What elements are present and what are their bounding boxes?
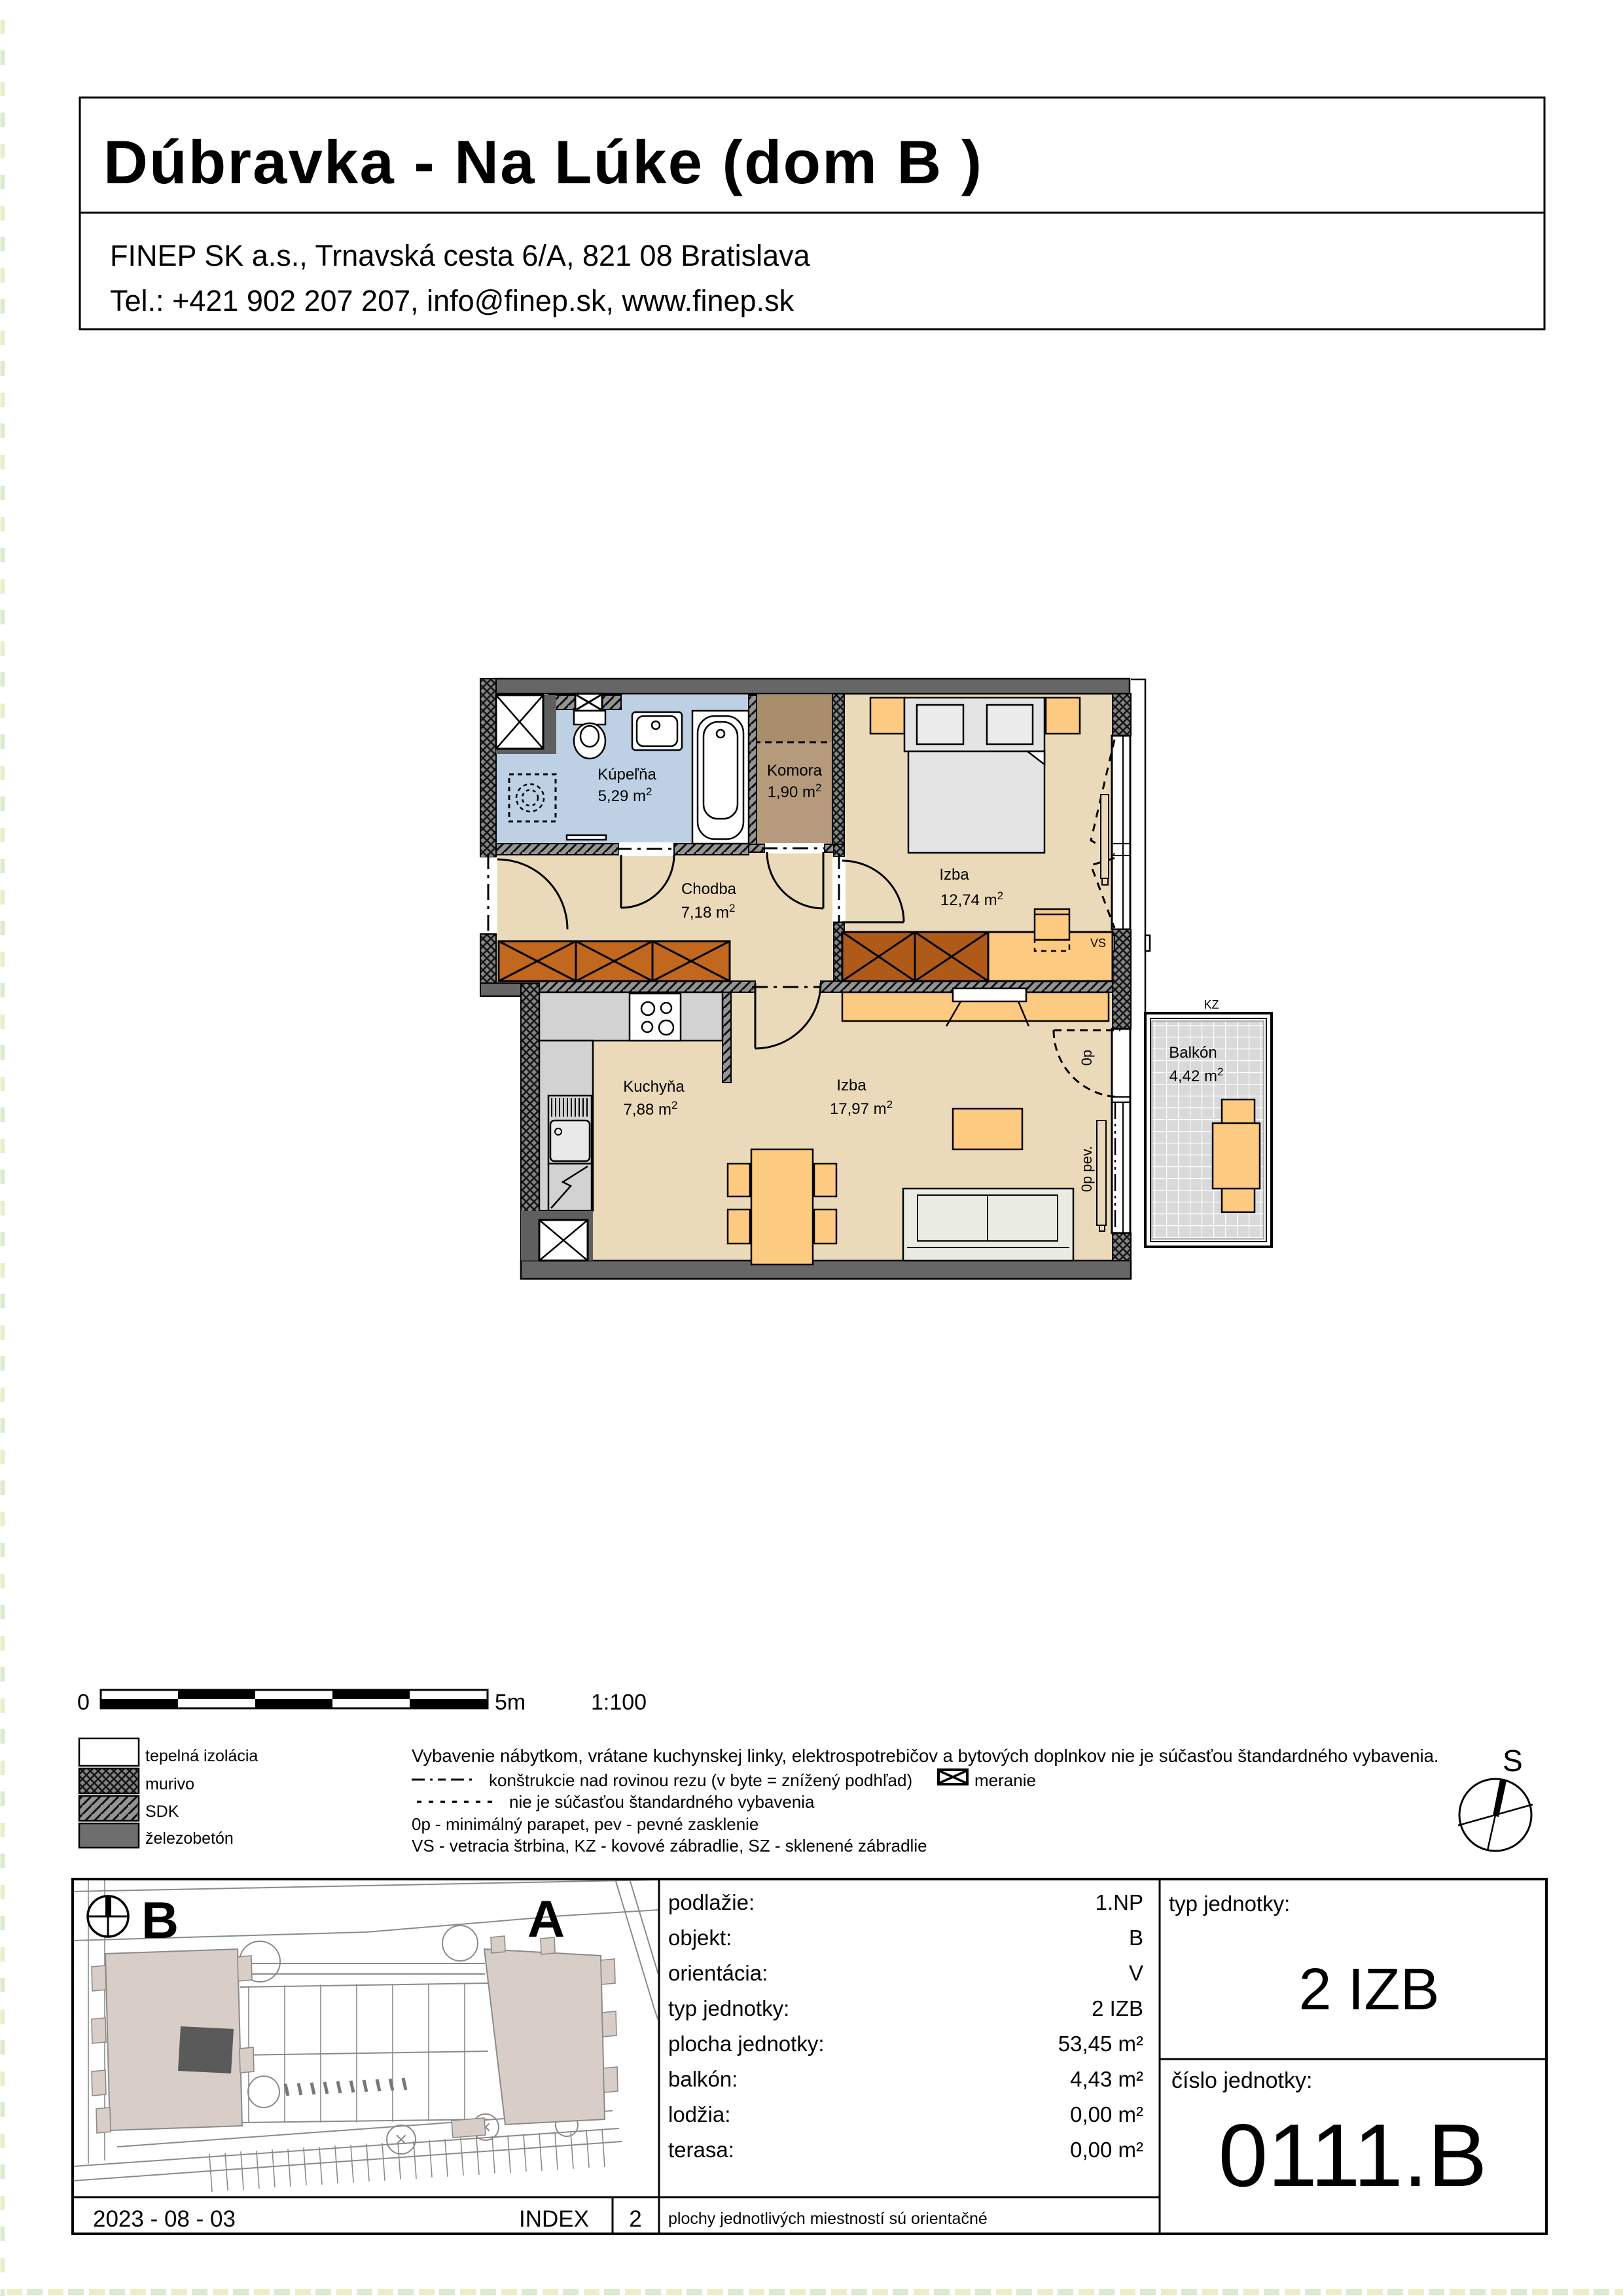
svg-text:lodžia:: lodžia: (668, 2102, 730, 2126)
svg-text:objekt:: objekt: (668, 1926, 732, 1950)
svg-text:železobetón: železobetón (145, 1829, 234, 1848)
svg-text:B: B (1129, 1926, 1143, 1950)
svg-text:typ jednotky:: typ jednotky: (1169, 1892, 1290, 1916)
svg-text:Dúbravka - Na Lúke (dom B ): Dúbravka - Na Lúke (dom B ) (103, 128, 983, 196)
svg-text:0: 0 (77, 1690, 90, 1715)
svg-text:Balkón: Balkón (1169, 1044, 1217, 1062)
svg-text:V: V (1129, 1961, 1143, 1985)
svg-text:Izba: Izba (939, 866, 969, 884)
svg-text:5m: 5m (495, 1690, 526, 1715)
svg-text:B: B (141, 1891, 179, 1949)
svg-text:0p - minimálný parapet, pev -: 0p - minimálný parapet, pev - pevné zask… (412, 1814, 758, 1834)
svg-text:podlažie:: podlažie: (668, 1890, 755, 1914)
svg-text:2023 - 08 - 03: 2023 - 08 - 03 (93, 2206, 236, 2232)
svg-text:0111.B: 0111.B (1219, 2106, 1488, 2205)
svg-text:1,90 m2: 1,90 m2 (768, 781, 822, 801)
svg-text:typ jednotky:: typ jednotky: (668, 1996, 789, 2020)
svg-text:0p pev.: 0p pev. (1079, 1146, 1095, 1193)
svg-text:Chodba: Chodba (681, 880, 737, 898)
svg-text:2 IZB: 2 IZB (1092, 1996, 1143, 2020)
svg-text:12,74 m2: 12,74 m2 (940, 889, 1003, 909)
svg-text:FINEP SK a.s., Trnavská cesta: FINEP SK a.s., Trnavská cesta 6/A, 821 0… (110, 239, 811, 272)
svg-text:plochy jednotlivých miestností: plochy jednotlivých miestností sú orient… (668, 2210, 988, 2228)
svg-text:1.NP: 1.NP (1096, 1890, 1143, 1914)
svg-text:4,42 m2: 4,42 m2 (1169, 1066, 1224, 1085)
svg-text:číslo jednotky:: číslo jednotky: (1171, 2068, 1312, 2093)
svg-text:Komora: Komora (767, 762, 823, 780)
svg-text:4,43 m²: 4,43 m² (1070, 2067, 1143, 2091)
svg-text:VS: VS (1090, 937, 1106, 950)
svg-text:plocha jednotky:: plocha jednotky: (668, 2032, 825, 2056)
svg-text:KZ: KZ (1204, 998, 1219, 1011)
svg-text:0p: 0p (1079, 1050, 1095, 1066)
svg-text:terasa:: terasa: (668, 2138, 734, 2162)
svg-text:A: A (527, 1890, 565, 1948)
svg-text:5,29 m2: 5,29 m2 (598, 785, 652, 805)
svg-text:2 IZB: 2 IZB (1298, 1957, 1439, 2022)
svg-text:17,97 m2: 17,97 m2 (830, 1098, 893, 1118)
svg-text:1:100: 1:100 (591, 1690, 647, 1715)
svg-text:2: 2 (629, 2206, 641, 2232)
svg-text:0,00 m²: 0,00 m² (1070, 2138, 1143, 2162)
svg-text:Vybavenie nábytkom, vrátane ku: Vybavenie nábytkom, vrátane kuchynskej l… (412, 1746, 1439, 1766)
svg-text:balkón:: balkón: (668, 2067, 738, 2091)
svg-text:7,88 m2: 7,88 m2 (624, 1099, 678, 1119)
svg-text:murivo: murivo (145, 1775, 194, 1793)
svg-text:nie je súčasťou štandardného v: nie je súčasťou štandardného vybavenia (509, 1792, 815, 1812)
svg-text:meranie: meranie (974, 1770, 1036, 1790)
svg-text:Kúpeľňa: Kúpeľňa (597, 766, 656, 783)
svg-text:Kuchyňa: Kuchyňa (623, 1078, 685, 1096)
svg-text:tepelná izolácia: tepelná izolácia (145, 1747, 258, 1765)
svg-text:konštrukcie nad rovinou rezu: konštrukcie nad rovinou rezu (v byte = z… (489, 1770, 912, 1790)
svg-text:Tel.: +421 902 207 207, info@: Tel.: +421 902 207 207, info@finep.sk, w… (110, 284, 794, 317)
svg-text:SDK: SDK (145, 1803, 179, 1821)
svg-text:53,45 m²: 53,45 m² (1058, 2032, 1143, 2056)
svg-text:S: S (1503, 1744, 1523, 1778)
svg-text:INDEX: INDEX (519, 2206, 589, 2232)
svg-text:0,00 m²: 0,00 m² (1070, 2102, 1143, 2126)
svg-text:Izba: Izba (836, 1077, 866, 1094)
svg-text:VS - vetracia štrbina, KZ - ko: VS - vetracia štrbina, KZ - kovové zábra… (412, 1836, 927, 1856)
svg-text:orientácia:: orientácia: (668, 1961, 768, 1985)
svg-text:7,18 m2: 7,18 m2 (681, 902, 736, 922)
